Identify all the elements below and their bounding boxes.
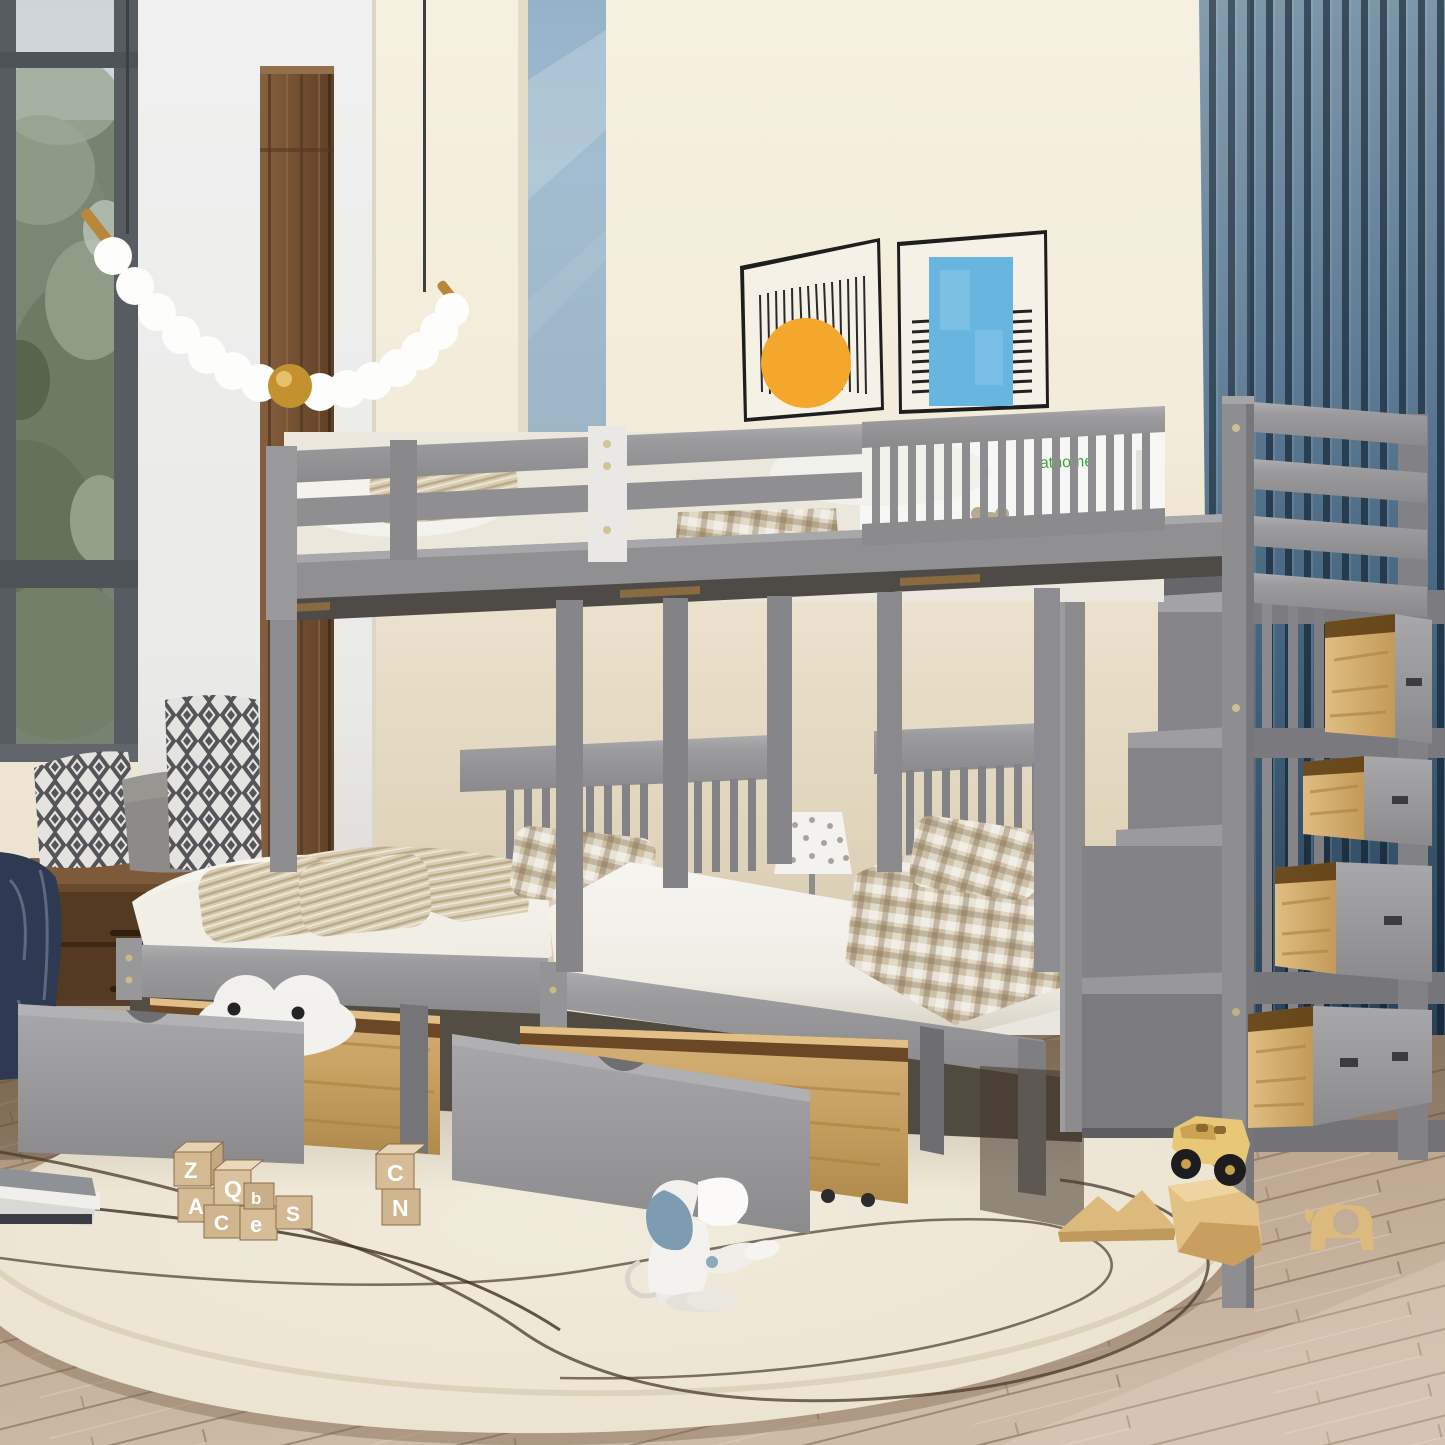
svg-text:A: A [188,1194,204,1219]
svg-text:N: N [392,1195,409,1221]
svg-text:S: S [286,1203,300,1226]
svg-text:C: C [214,1212,229,1235]
svg-text:Q: Q [224,1176,242,1202]
svg-text:athome: athome [1040,453,1094,472]
svg-text:C: C [387,1160,404,1186]
svg-text:b: b [251,1189,261,1208]
svg-text:e: e [250,1212,262,1237]
svg-text:Z: Z [184,1158,197,1183]
